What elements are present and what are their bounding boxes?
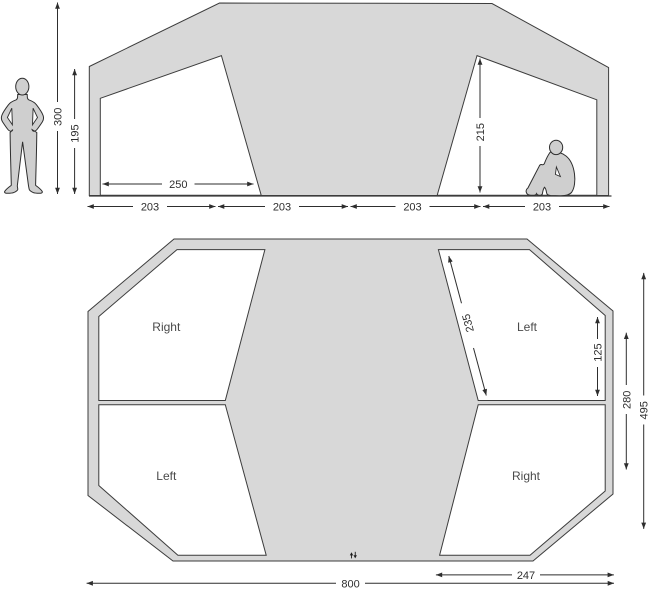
svg-text:Right: Right [152,320,181,334]
svg-text:800: 800 [341,578,359,589]
svg-text:203: 203 [533,202,551,214]
svg-text:Right: Right [512,469,541,483]
svg-text:203: 203 [403,202,421,214]
svg-text:125: 125 [593,343,605,361]
svg-text:495: 495 [639,401,650,419]
svg-text:250: 250 [169,179,187,191]
svg-text:Left: Left [517,320,538,334]
svg-text:280: 280 [621,391,633,409]
svg-text:247: 247 [517,570,535,582]
svg-text:203: 203 [273,202,291,214]
svg-text:Left: Left [156,469,177,483]
svg-text:203: 203 [141,202,159,214]
svg-text:300: 300 [53,108,65,126]
svg-text:195: 195 [70,124,82,142]
svg-text:215: 215 [475,123,487,141]
